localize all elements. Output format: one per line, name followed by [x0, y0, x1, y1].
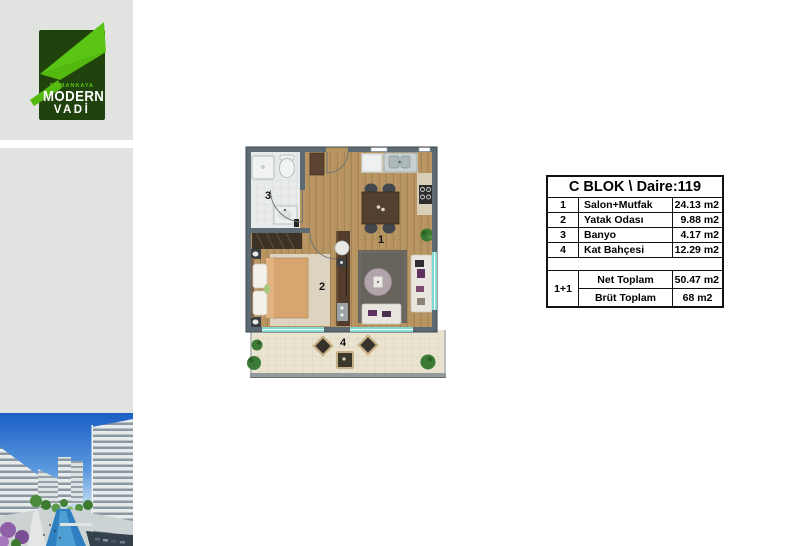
total-name: Net Toplam — [579, 271, 673, 289]
spacer-cell — [547, 258, 723, 271]
total-area: 50.47 m2 — [673, 271, 724, 289]
plant — [421, 229, 434, 242]
complex-render-illustration — [0, 413, 133, 546]
room-number: 1 — [547, 198, 579, 213]
brochure-page: DUMANKAYA MODERN VADİ — [0, 0, 800, 546]
label-yatak-odasi: 2 — [319, 281, 325, 293]
table-title: C BLOK \ Daire:119 — [547, 176, 723, 198]
room-name: Salon+Mutfak — [579, 198, 673, 213]
complex-render-photo — [0, 413, 133, 546]
total-name: Brüt Toplam — [579, 289, 673, 308]
table-row: 4 Kat Bahçesi 12.29 m2 — [547, 243, 723, 258]
room-number: 4 — [547, 243, 579, 258]
dumankaya-modern-vadi-logo: DUMANKAYA MODERN VADİ — [30, 16, 116, 124]
room-area: 12.29 m2 — [673, 243, 724, 258]
label-salon-mutfak: 1 — [378, 234, 384, 246]
room-name: Yatak Odası — [579, 213, 673, 228]
table-row: 1 Salon+Mutfak 24.13 m2 — [547, 198, 723, 213]
room-area: 4.17 m2 — [673, 228, 724, 243]
sidebar-middle-panel — [0, 148, 133, 413]
table-total-row: 1+1 Net Toplam 50.47 m2 — [547, 271, 723, 289]
table-header-row: C BLOK \ Daire:119 — [547, 176, 723, 198]
floor-plan: 1 2 3 4 — [240, 140, 450, 386]
table-spacer-row — [547, 258, 723, 271]
room-area: 24.13 m2 — [673, 198, 724, 213]
room-number: 2 — [547, 213, 579, 228]
entrance-closet — [310, 153, 324, 175]
table-row: 3 Banyo 4.17 m2 — [547, 228, 723, 243]
logo-vadi-text: VADİ — [39, 104, 105, 116]
sidebar-top-panel: DUMANKAYA MODERN VADİ — [0, 0, 133, 140]
room-name: Banyo — [579, 228, 673, 243]
unit-type: 1+1 — [547, 271, 579, 308]
room-number: 3 — [547, 228, 579, 243]
room-name: Kat Bahçesi — [579, 243, 673, 258]
label-banyo: 3 — [265, 190, 271, 202]
floor-plan-drawing: 1 2 3 4 — [240, 140, 450, 386]
label-kat-bahcesi: 4 — [340, 337, 347, 349]
hall-closet-divider — [335, 231, 350, 326]
room-area: 9.88 m2 — [673, 213, 724, 228]
unit-info-table: C BLOK \ Daire:119 1 Salon+Mutfak 24.13 … — [546, 175, 724, 308]
table-row: 2 Yatak Odası 9.88 m2 — [547, 213, 723, 228]
total-area: 68 m2 — [673, 289, 724, 308]
logo-modern-text: MODERN — [43, 88, 101, 105]
